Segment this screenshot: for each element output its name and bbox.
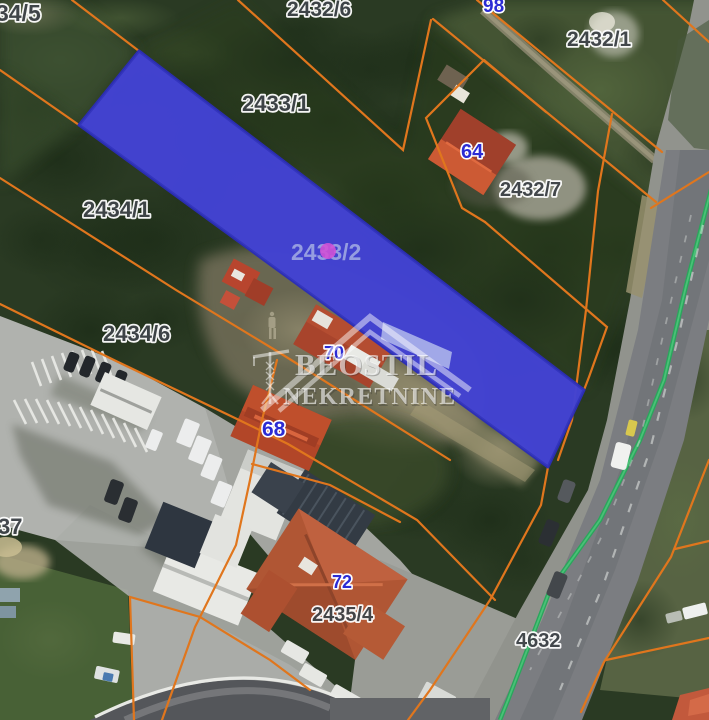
svg-text:98: 98 xyxy=(483,0,504,17)
svg-text:2432/1: 2432/1 xyxy=(567,28,632,51)
svg-text:64: 64 xyxy=(461,141,484,163)
svg-text:34/5: 34/5 xyxy=(0,0,41,26)
svg-text:68: 68 xyxy=(262,418,286,441)
svg-text:2433/1: 2433/1 xyxy=(242,91,309,116)
svg-text:72: 72 xyxy=(332,572,352,592)
svg-text:37: 37 xyxy=(0,514,22,539)
svg-text:2435/4: 2435/4 xyxy=(312,604,374,626)
svg-text:NEKRETNINE: NEKRETNINE xyxy=(283,384,456,410)
svg-text:4632: 4632 xyxy=(516,630,561,652)
svg-text:2434/6: 2434/6 xyxy=(103,321,170,346)
svg-text:2434/1: 2434/1 xyxy=(83,197,150,222)
svg-text:BEOSTIL: BEOSTIL xyxy=(295,347,438,382)
svg-text:2432/6: 2432/6 xyxy=(287,0,351,21)
svg-text:2432/7: 2432/7 xyxy=(500,179,561,201)
